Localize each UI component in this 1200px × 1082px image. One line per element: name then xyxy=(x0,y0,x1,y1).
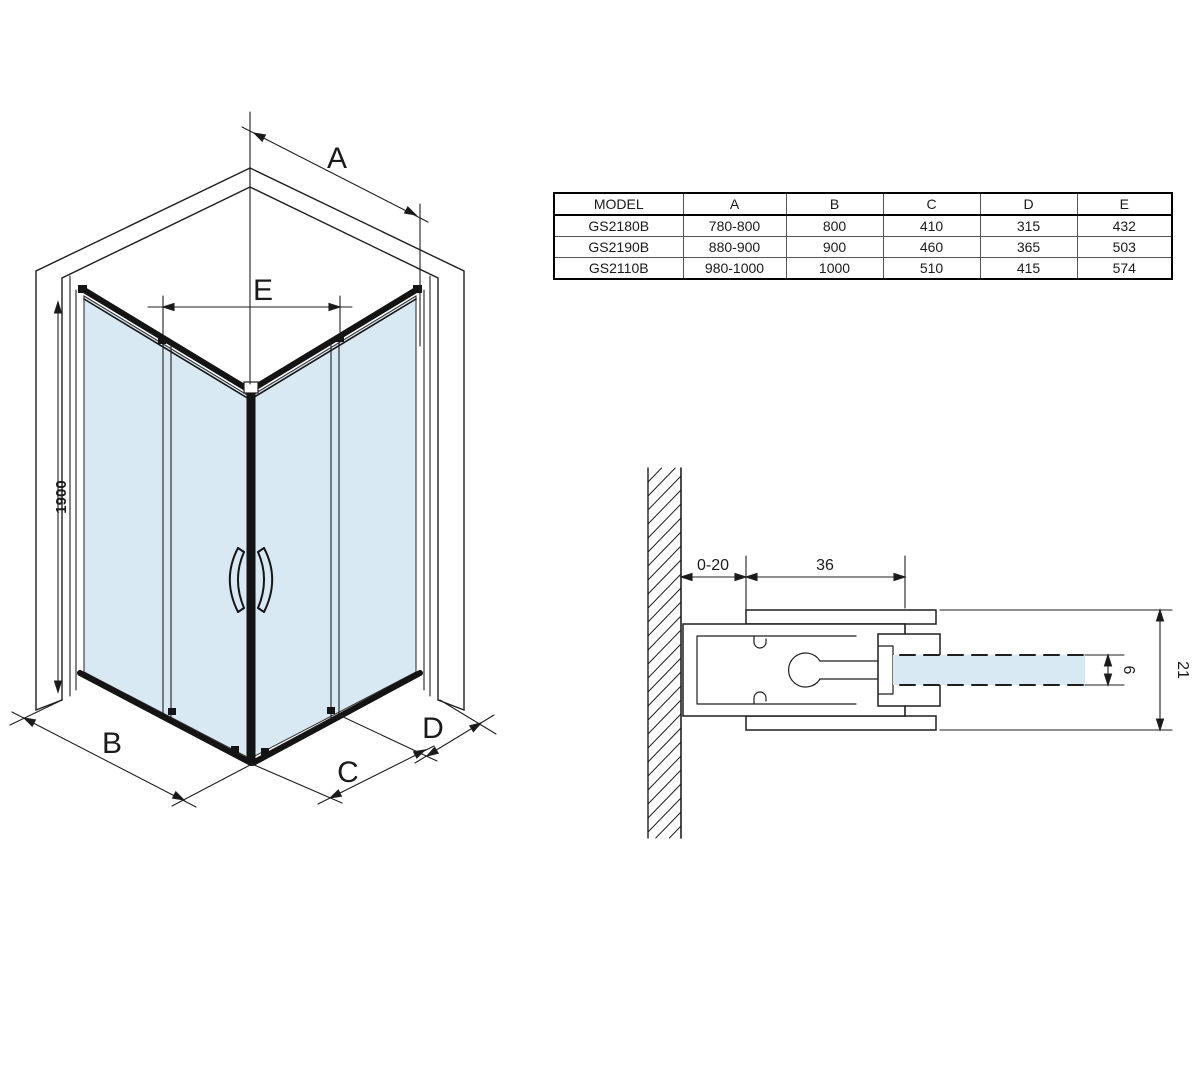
profile-body xyxy=(683,624,905,716)
col-header-e: E xyxy=(1077,193,1172,215)
dim-label-profile-width: 36 xyxy=(816,557,834,574)
cell-b: 800 xyxy=(786,215,883,237)
col-header-a: A xyxy=(683,193,786,215)
technical-drawing-page: { "figure": { "type": "shower-enclosure-… xyxy=(0,0,1200,1082)
dim-label-e: E xyxy=(253,274,273,307)
cell-b: 900 xyxy=(786,237,883,258)
dimension-glass-thickness xyxy=(1105,655,1112,685)
cell-d: 415 xyxy=(980,258,1077,280)
dimensions-table-header: MODEL A B C D E xyxy=(554,193,1172,215)
dim-label-1900: 1900 xyxy=(53,480,70,513)
section-glass-panel xyxy=(893,655,1124,685)
cell-a: 980-1000 xyxy=(683,258,786,280)
profile-bottom-flange xyxy=(746,716,936,730)
dim-label-d: D xyxy=(422,712,444,745)
table-row: GS2110B 980-1000 1000 510 415 574 xyxy=(554,258,1172,280)
col-header-model: MODEL xyxy=(554,193,683,215)
col-header-c: C xyxy=(883,193,980,215)
profile-section-view: 0-20 36 6 21 xyxy=(648,468,1191,838)
table-header-row: MODEL A B C D E xyxy=(554,193,1172,215)
dimensions-table: MODEL A B C D E GS2180B 780-800 800 410 … xyxy=(553,192,1173,280)
table-row: GS2190B 880-900 900 460 365 503 xyxy=(554,237,1172,258)
profile-top-flange xyxy=(746,610,936,624)
cell-c: 460 xyxy=(883,237,980,258)
dim-label-wall-offset: 0-20 xyxy=(697,557,729,574)
dim-label-a: A xyxy=(327,142,347,175)
cell-model: GS2110B xyxy=(554,258,683,280)
cell-c: 510 xyxy=(883,258,980,280)
shower-enclosure-drawing: A E B C D 1900 xyxy=(0,0,1200,1082)
cell-e: 503 xyxy=(1077,237,1172,258)
dim-label-c: C xyxy=(337,756,359,789)
cell-b: 1000 xyxy=(786,258,883,280)
cell-e: 574 xyxy=(1077,258,1172,280)
dim-label-profile-depth: 21 xyxy=(1174,661,1191,679)
isometric-corner-view: A E B C D 1900 xyxy=(10,112,496,807)
table-row: GS2180B 780-800 800 410 315 432 xyxy=(554,215,1172,237)
section-glass-fill xyxy=(893,655,1085,685)
wall-hatched xyxy=(648,468,681,838)
cell-c: 410 xyxy=(883,215,980,237)
cell-a: 780-800 xyxy=(683,215,786,237)
cell-d: 315 xyxy=(980,215,1077,237)
cell-e: 432 xyxy=(1077,215,1172,237)
wall-hatch-lines xyxy=(648,468,681,838)
dim-label-b: B xyxy=(102,727,122,760)
cell-model: GS2190B xyxy=(554,237,683,258)
cell-a: 880-900 xyxy=(683,237,786,258)
col-header-b: B xyxy=(786,193,883,215)
col-header-d: D xyxy=(980,193,1077,215)
cell-model: GS2180B xyxy=(554,215,683,237)
dim-label-glass-thickness: 6 xyxy=(1120,666,1137,675)
cell-d: 365 xyxy=(980,237,1077,258)
